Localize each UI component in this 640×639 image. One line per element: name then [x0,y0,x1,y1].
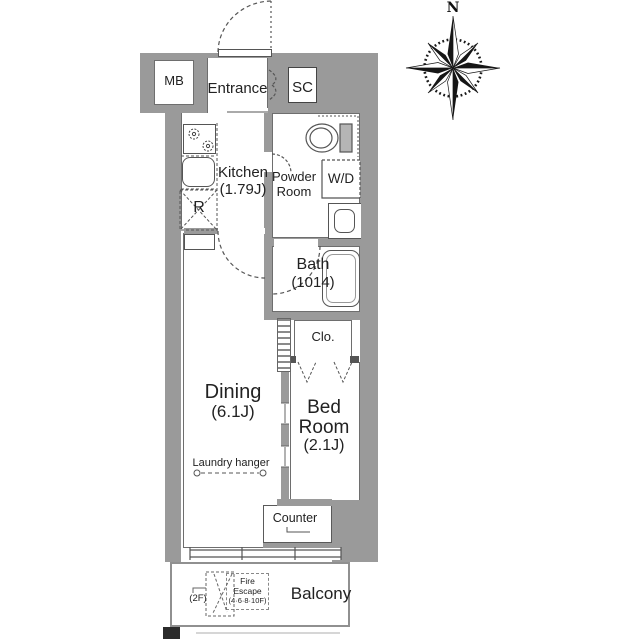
compass-rose-icon [406,16,500,120]
kitchen-label: Kitchen (1.79J) [214,164,272,199]
wall-bottom-right-corner [341,543,360,562]
counter-label: Counter [265,511,325,525]
powder-room-label: Powder Room [272,170,316,200]
closet-label: Clo. [296,330,350,345]
powder-line1: Powder [272,170,316,185]
bath-size: (1014) [284,274,342,291]
window-south [190,548,341,560]
bath-name: Bath [284,256,342,274]
wall-left [165,113,181,562]
closet-opening [296,357,350,363]
wall-hatch-strip [277,318,291,372]
fire-escape-floors: (4·6·8·10F) [227,597,268,606]
balcony-label: Balcony [290,584,352,604]
entrance-door-swing-icon [218,1,271,52]
bath-label: Bath (1014) [284,256,342,292]
entrance-door-leaf [218,49,272,57]
bedroom-size: (2.1J) [288,438,360,455]
stove-icon [183,124,216,154]
entrance-label: Entrance [207,80,268,97]
meter-box-label: MB [154,74,194,89]
dining-label: Dining (6.1J) [195,381,271,422]
bedroom-line1: Bed [288,398,360,418]
washer-dryer-label: W/D [322,171,360,187]
fire-escape-label-box: Fire Escape (4·6·8·10F) [226,573,269,610]
wall-bath-left [264,246,272,312]
laundry-hanger-label: Laundry hanger [192,457,270,470]
compass-north-label: N [444,0,462,16]
bedroom-line2: Room [288,418,360,438]
wash-basin-bowl-icon [334,209,355,233]
bath-door-opening [274,239,318,247]
balcony-corner-pillar [163,627,180,639]
floor-plan: N MB Entrance SC Kitchen (1.79J) Powder … [0,0,640,639]
fire-escape-2f-label: (2F) [186,594,210,605]
dining-name: Dining [195,381,271,403]
kitchen-door-opening [218,228,265,234]
kitchen-size: (1.79J) [214,181,272,198]
dining-size: (6.1J) [195,403,271,422]
closet-opening-stub-right [350,356,359,363]
kitchen-cabinet [184,234,215,250]
kitchen-name: Kitchen [214,164,272,181]
powder-line2: Room [272,185,316,200]
entrance-hallway [227,108,268,118]
wall-bedroom-bottom [277,499,332,506]
bedroom-label: Bed Room (2.1J) [288,398,360,455]
shoe-closet-label: SC [288,79,317,96]
kitchen-sink-icon [182,157,215,187]
refrigerator-label: R [190,199,208,217]
wall-right [360,113,378,562]
